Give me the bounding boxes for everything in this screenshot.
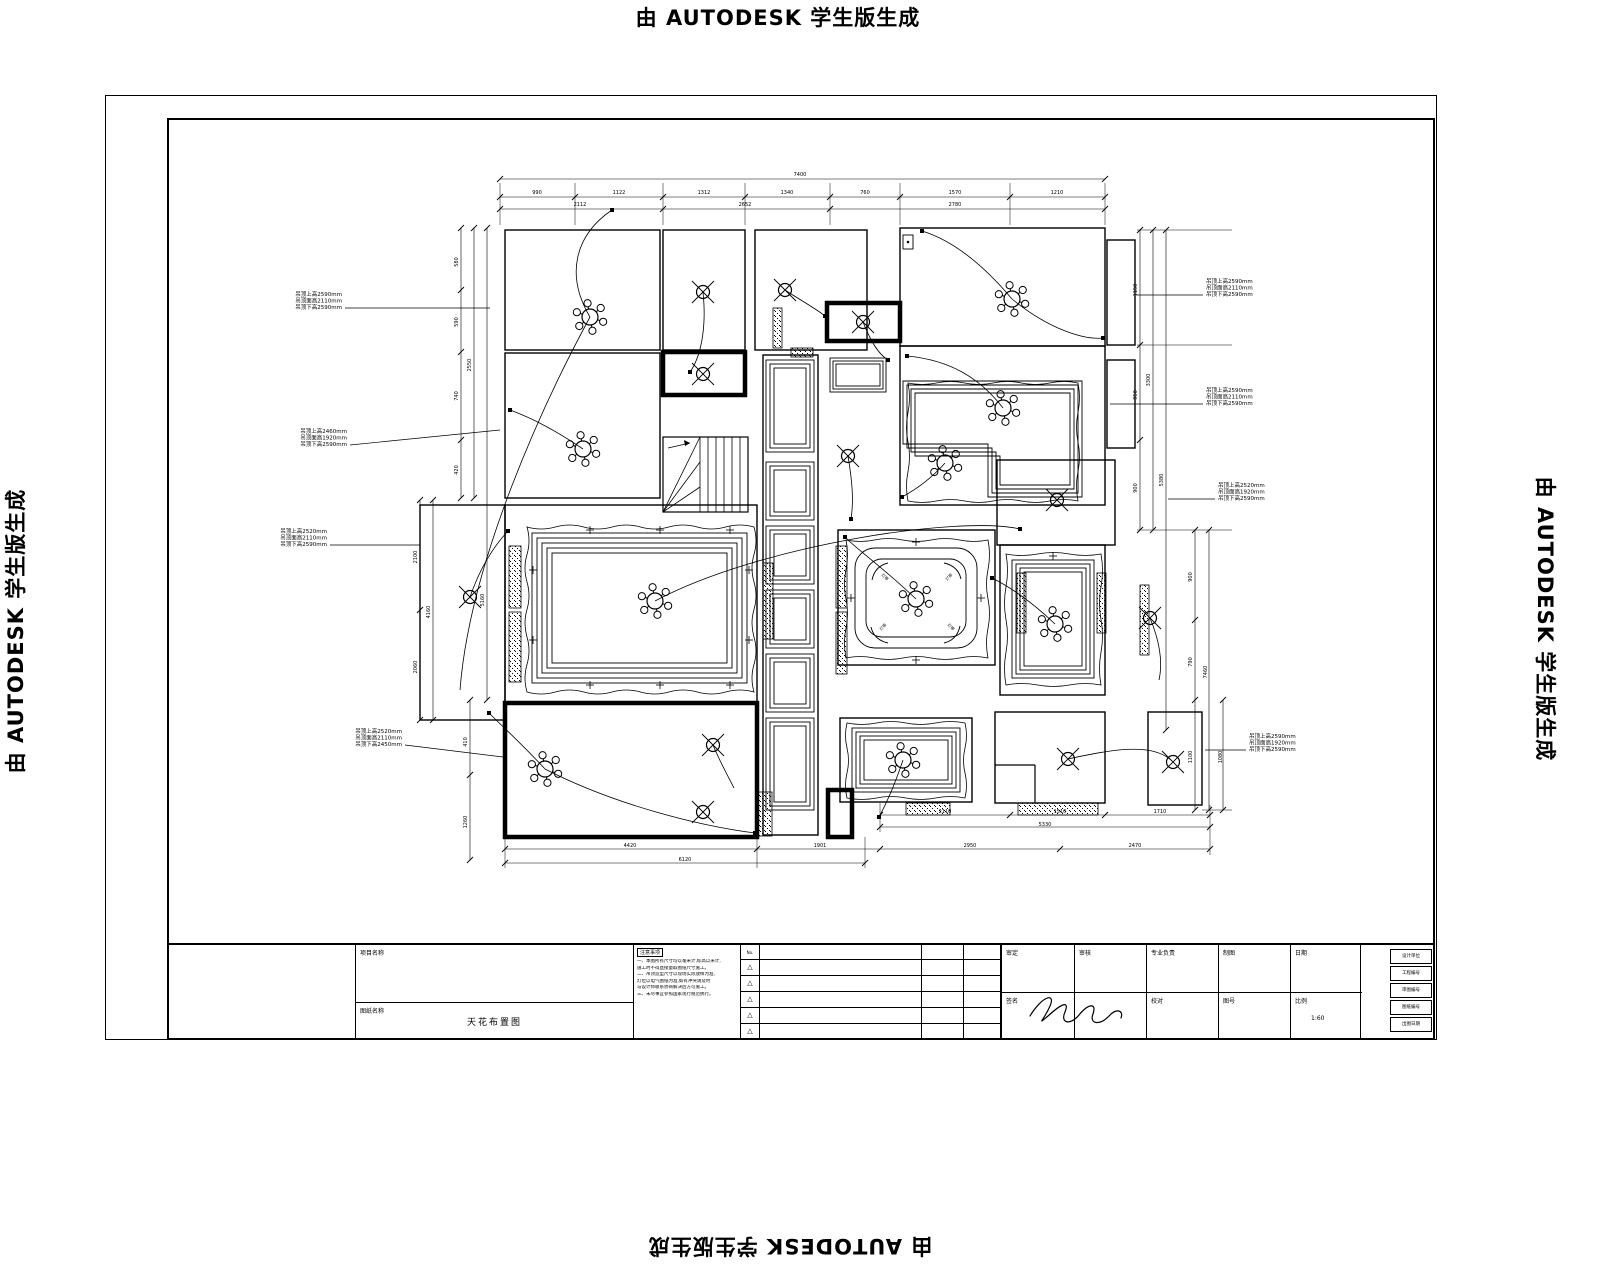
svg-text:1340: 1340 — [781, 190, 794, 196]
svg-text:5380: 5380 — [1159, 474, 1165, 487]
svg-text:7460: 7460 — [1203, 666, 1209, 679]
ceiling-height-annotation: 吊顶上高2590mm吊顶面高2110mm吊顶下高2590mm — [1206, 277, 1253, 298]
svg-text:590: 590 — [454, 317, 460, 327]
svg-text:4160: 4160 — [426, 606, 432, 619]
svg-text:900: 900 — [1188, 572, 1194, 582]
svg-text:1210: 1210 — [1051, 190, 1064, 196]
ceiling-height-annotation: 吊顶上高2590mm吊顶面高2110mm吊顶下高2590mm — [1206, 386, 1253, 407]
svg-text:760: 760 — [860, 190, 870, 196]
downlight-symbol — [1057, 748, 1079, 770]
svg-text:1150: 1150 — [1133, 284, 1139, 297]
svg-text:6120: 6120 — [679, 857, 692, 863]
svg-text:1260: 1260 — [463, 816, 469, 829]
svg-text:灯带: 灯带 — [880, 572, 890, 582]
svg-text:7400: 7400 — [794, 172, 807, 178]
svg-text:990: 990 — [532, 190, 542, 196]
ceiling-plan-svg: 7400990112213121340760157012102112265227… — [0, 0, 1600, 1280]
coffer-mouldings — [532, 358, 1094, 810]
stairs — [663, 437, 748, 512]
svg-text:1710: 1710 — [1154, 809, 1167, 815]
ceiling-height-annotation: 吊顶上高2460mm吊顶面高1920mm吊顶下高2590mm — [300, 427, 347, 448]
ceiling-height-annotation: 吊顶上高2520mm吊顶面高2110mm吊顶下高2590mm — [280, 527, 327, 548]
downlight-symbol — [692, 801, 714, 823]
svg-text:1122: 1122 — [613, 190, 626, 196]
svg-text:900: 900 — [1133, 483, 1139, 493]
svg-text:2950: 2950 — [964, 843, 977, 849]
svg-text:2652: 2652 — [739, 202, 752, 208]
svg-text:2780: 2780 — [949, 202, 962, 208]
extension-lines — [500, 183, 1232, 868]
downlight-symbol — [774, 279, 796, 301]
svg-text:2550: 2550 — [467, 359, 473, 372]
svg-text:灯带: 灯带 — [878, 622, 888, 632]
svg-text:2060: 2060 — [413, 661, 419, 674]
svg-text:5160: 5160 — [480, 594, 486, 607]
ceiling-height-annotation: 吊顶上高2520mm吊顶面高1920mm吊顶下高2590mm — [1218, 481, 1265, 502]
svg-text:950: 950 — [1133, 390, 1139, 400]
rounded-coffer: 灯带灯带灯带灯带 — [855, 548, 977, 648]
room-outlines — [420, 228, 1202, 835]
ceiling-height-annotation: 吊顶上高2590mm吊顶面高1920mm吊顶下高2590mm — [1249, 732, 1296, 753]
cad-sheet: 由 AUTODESK 学生版生成 由 AUTODESK 学生版生成 由 AUTO… — [0, 0, 1600, 1280]
svg-text:灯带: 灯带 — [946, 622, 956, 632]
svg-text:2112: 2112 — [574, 202, 587, 208]
downlight-symbol — [837, 445, 859, 467]
svg-text:5330: 5330 — [1039, 822, 1052, 828]
downlight-symbols — [459, 279, 1184, 823]
svg-text:420: 420 — [454, 465, 460, 475]
svg-text:580: 580 — [454, 257, 460, 267]
svg-text:740: 740 — [454, 391, 460, 401]
ceiling-height-annotation: 吊顶上高2520mm吊顶面高2110mm吊顶下高2450mm — [355, 727, 402, 748]
svg-text:灯带: 灯带 — [944, 572, 954, 582]
svg-text:1901: 1901 — [814, 843, 827, 849]
downlight-symbol — [459, 586, 481, 608]
svg-text:1570: 1570 — [949, 190, 962, 196]
svg-text:1100: 1100 — [1188, 751, 1194, 764]
downlight-symbol — [692, 281, 714, 303]
svg-text:1312: 1312 — [698, 190, 711, 196]
junction-nodes — [487, 208, 1105, 835]
downlight-symbol — [702, 734, 724, 756]
svg-text:4420: 4420 — [624, 843, 637, 849]
svg-text:1080: 1080 — [1218, 751, 1224, 764]
svg-text:2100: 2100 — [413, 551, 419, 564]
height-annotations: 吊顶上高2590mm吊顶面高2110mm吊顶下高2590mm吊顶上高2460mm… — [280, 277, 1295, 757]
downlight-symbol — [692, 363, 714, 385]
svg-text:410: 410 — [463, 737, 469, 747]
svg-text:2470: 2470 — [1129, 843, 1142, 849]
downlight-symbol — [1162, 751, 1184, 773]
downlight-symbol — [852, 311, 874, 333]
handwritten-signature — [1030, 998, 1122, 1023]
downlight-symbol — [1046, 489, 1068, 511]
svg-text:3300: 3300 — [1146, 374, 1152, 387]
svg-text:790: 790 — [1188, 657, 1194, 667]
ceiling-height-annotation: 吊顶上高2590mm吊顶面高2110mm吊顶下高2590mm — [295, 290, 342, 311]
leader-curves — [460, 210, 1171, 833]
